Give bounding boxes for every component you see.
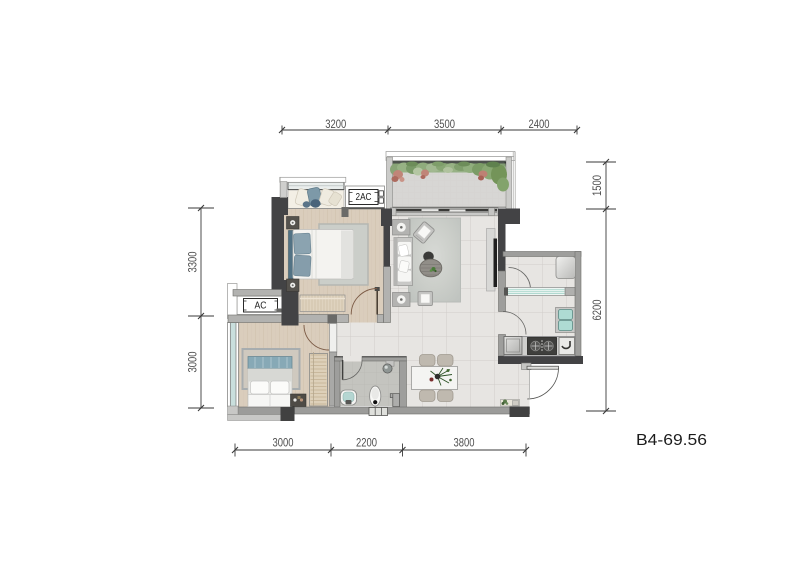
svg-text:3000: 3000 [186,351,200,372]
svg-text:3500: 3500 [434,117,455,131]
svg-text:2AC: 2AC [356,192,372,203]
svg-text:2200: 2200 [356,436,377,450]
svg-text:3200: 3200 [325,117,346,131]
svg-text:3000: 3000 [273,436,294,450]
svg-text:3300: 3300 [186,251,200,272]
svg-text:2400: 2400 [529,117,550,131]
svg-text:6200: 6200 [590,299,604,320]
svg-text:3800: 3800 [454,436,475,450]
svg-text:AC: AC [255,301,267,312]
svg-text:B4-69.56: B4-69.56 [636,432,707,449]
svg-text:1500: 1500 [590,175,604,196]
